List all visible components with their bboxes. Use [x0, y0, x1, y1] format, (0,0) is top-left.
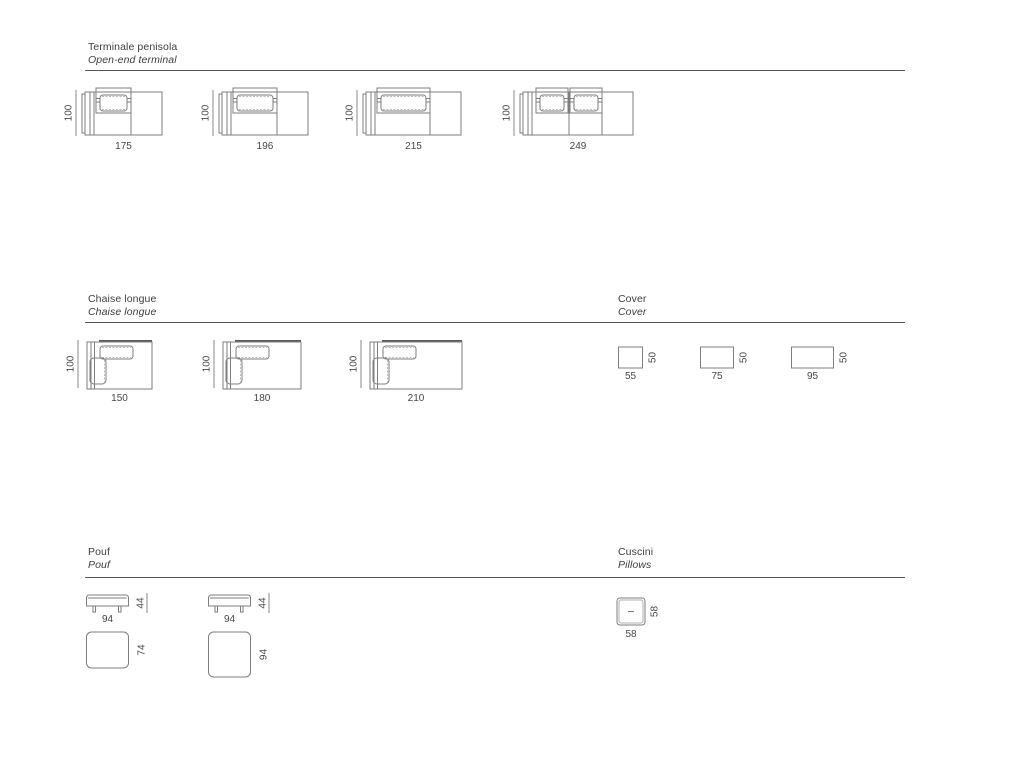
pouf-elevation-diagram: 9444 [86, 590, 160, 628]
cover-diagram: 9550 [791, 340, 857, 386]
section-cuscini-header: Cuscini Pillows [618, 546, 653, 572]
height-dimension-label: 50 [648, 352, 659, 364]
section-title-italian: Terminale penisola [88, 41, 177, 54]
height-dimension-label: 100 [349, 355, 360, 372]
height-dimension-label: 100 [502, 104, 513, 121]
cover-outline [792, 347, 834, 368]
terminal-unit-diagram: 100196 [196, 84, 316, 156]
height-dimension-label: 50 [739, 352, 750, 364]
section-cover-header: Cover Cover [618, 293, 647, 319]
section-terminale-header: Terminale penisola Open-end terminal [88, 41, 177, 67]
width-dimension-label: 210 [408, 393, 425, 404]
height-dimension-label: 44 [136, 597, 147, 609]
height-dimension-label: 50 [839, 352, 850, 364]
width-dimension-label: 75 [711, 371, 723, 382]
pouf-leg [241, 606, 244, 612]
section-title-italian: Pouf [88, 546, 110, 559]
cover-outline [619, 347, 643, 368]
width-dimension-label: 58 [625, 629, 637, 640]
section-chaise-header: Chaise longue Chaise longue [88, 293, 156, 319]
section-divider-rule [85, 70, 905, 71]
catalog-page: Terminale penisola Open-end terminal Cha… [0, 0, 1024, 768]
width-dimension-label: 175 [115, 141, 132, 152]
depth-dimension-label: 74 [137, 644, 148, 656]
section-divider-rule [85, 322, 905, 323]
section-title-english: Pouf [88, 559, 110, 572]
width-dimension-label: 94 [224, 614, 236, 625]
chaise-cushion-outline [226, 358, 242, 384]
width-dimension-label: 196 [257, 141, 274, 152]
sofa-body-outline [223, 342, 301, 389]
headrest-cushion-outline [574, 95, 598, 111]
sofa-body-outline [87, 342, 152, 389]
section-divider-rule [85, 577, 905, 578]
pouf-top-outline [209, 632, 251, 677]
pillow-diagram: 5858 [613, 593, 679, 643]
height-dimension-label: 58 [650, 606, 661, 618]
cover-diagram: 5550 [618, 340, 666, 386]
height-dimension-label: 100 [64, 104, 75, 121]
pouf-seat-outline [87, 595, 129, 606]
section-title-english: Open-end terminal [88, 54, 177, 67]
pouf-elevation-diagram: 9444 [208, 590, 282, 628]
height-dimension-label: 100 [345, 104, 356, 121]
section-title-english: Cover [618, 306, 647, 319]
pouf-leg [93, 606, 96, 612]
width-dimension-label: 215 [405, 141, 422, 152]
height-dimension-label: 44 [258, 597, 269, 609]
pouf-top-view-diagram: 74 [86, 630, 160, 674]
chaise-cushion-outline [373, 358, 389, 384]
pouf-top-view-diagram: 94 [208, 630, 282, 683]
width-dimension-label: 180 [254, 393, 271, 404]
section-title-italian: Cover [618, 293, 647, 306]
section-title-italian: Chaise longue [88, 293, 156, 306]
depth-dimension-label: 94 [259, 649, 270, 661]
pouf-top-outline [87, 632, 129, 668]
height-dimension-label: 100 [201, 104, 212, 121]
height-dimension-label: 100 [66, 355, 77, 372]
width-dimension-label: 150 [111, 393, 128, 404]
section-title-italian: Cuscini [618, 546, 653, 559]
width-dimension-label: 94 [102, 614, 114, 625]
terminal-unit-diagram: 100249 [497, 84, 641, 156]
terminal-unit-diagram: 100175 [59, 84, 170, 156]
width-dimension-label: 95 [807, 371, 819, 382]
headrest-cushion-outline [381, 95, 426, 111]
pouf-leg [215, 606, 218, 612]
chaise-longue-diagram: 100150 [61, 332, 158, 412]
chaise-longue-diagram: 100210 [344, 332, 468, 412]
terminal-unit-diagram: 100215 [340, 84, 469, 156]
headrest-cushion-outline [237, 95, 273, 111]
section-title-english: Pillows [618, 559, 653, 572]
pouf-leg [119, 606, 122, 612]
width-dimension-label: 55 [625, 371, 637, 382]
pouf-seat-outline [209, 595, 251, 606]
headrest-cushion-outline [540, 95, 564, 111]
cover-outline [701, 347, 734, 368]
chaise-longue-diagram: 100180 [197, 332, 307, 412]
section-title-english: Chaise longue [88, 306, 156, 319]
cover-diagram: 7550 [700, 340, 757, 386]
section-pouf-header: Pouf Pouf [88, 546, 110, 572]
width-dimension-label: 249 [570, 141, 587, 152]
chaise-cushion-outline [90, 358, 106, 384]
height-dimension-label: 100 [202, 355, 213, 372]
headrest-cushion-outline [100, 95, 127, 111]
